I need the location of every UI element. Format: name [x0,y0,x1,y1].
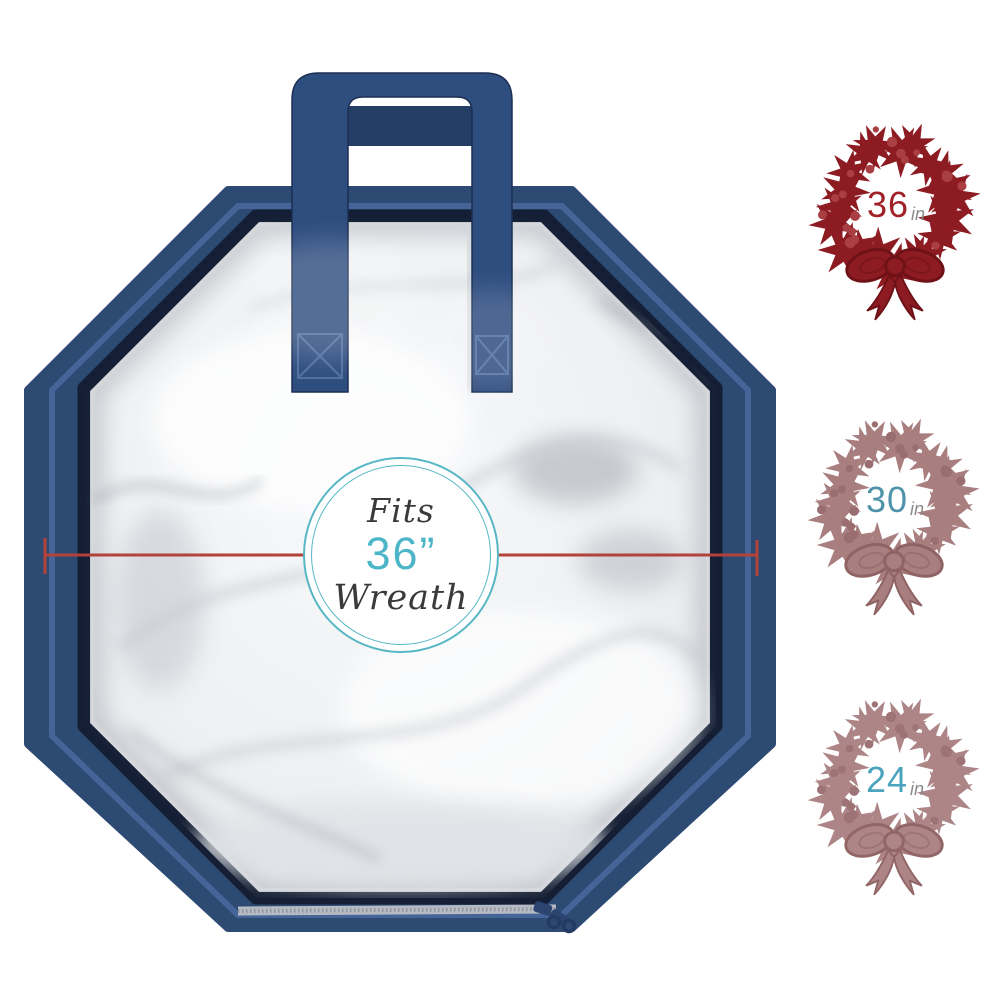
wreath-size-label: 30in [796,482,992,518]
wreath-size-number: 36 [867,184,909,225]
fits-size-badge: Fits 36” Wreath [303,457,499,653]
fits-label: Fits [367,494,435,529]
wreath-size-label: 36in [797,187,993,223]
wreath-size-unit: in [910,499,924,519]
wreath-label: Wreath [333,580,468,617]
wreath-size-number: 24 [866,759,908,800]
wreath-size-unit: in [910,779,924,799]
product-image-canvas: Fits 36” Wreath 36in 30in 24in [0,0,1000,1000]
size-value: 36” [365,529,436,579]
wreath-badge-36: 36in [797,103,993,330]
wreath-badge-24: 24in [796,678,992,905]
rear-handle-bar [340,106,480,146]
wreath-size-number: 30 [866,479,908,520]
wreath-badge-30: 30in [796,398,992,625]
wreath-size-unit: in [911,204,925,224]
wreath-size-label: 24in [796,762,992,798]
